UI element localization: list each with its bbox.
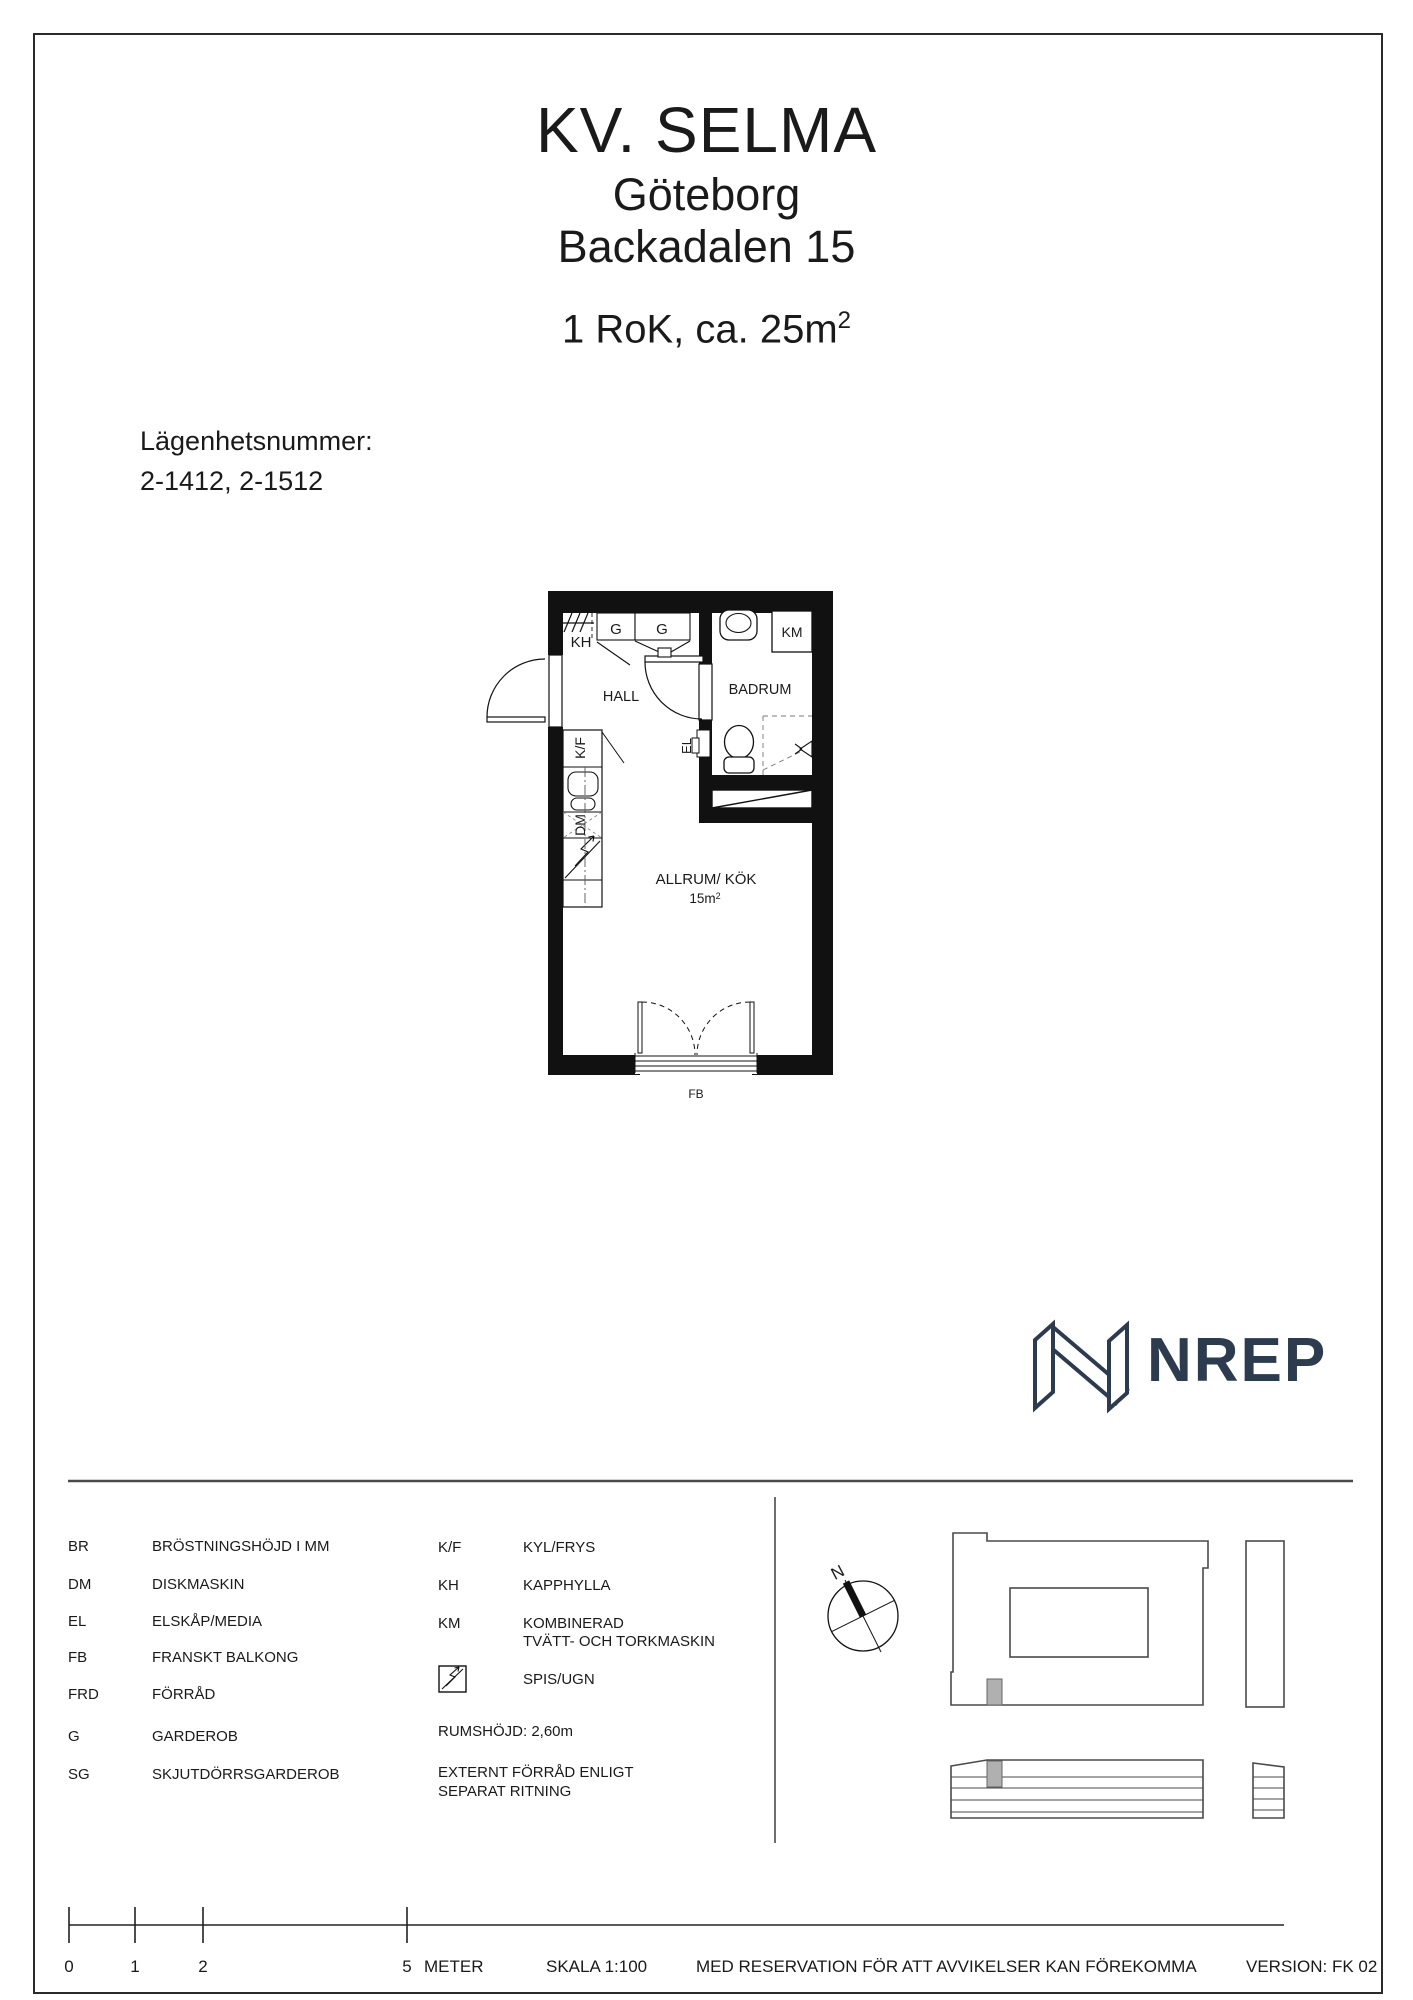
room-height-note: RUMSHÖJD: 2,60m <box>438 1723 573 1740</box>
kf-label: K/F <box>572 737 588 759</box>
allrum-label: ALLRUM/ KÖK <box>656 870 757 888</box>
legend-row-kf: K/FKYL/FRYS <box>438 1539 595 1556</box>
floor-plan: KH G G EL KM <box>487 591 833 1101</box>
kh-label: KH <box>571 634 592 651</box>
legend-desc: SPIS/UGN <box>523 1671 595 1688</box>
disclaimer-text: MED RESERVATION FÖR ATT AVVIKELSER KAN F… <box>696 1957 1197 1977</box>
legend-row-br: BRBRÖSTNINGSHÖJD I MM <box>68 1538 330 1555</box>
legend-code: KH <box>438 1577 523 1594</box>
legend-code: G <box>68 1728 152 1745</box>
legend-row-g: GGARDEROB <box>68 1728 238 1745</box>
legend-row-frd: FRDFÖRRÅD <box>68 1686 215 1703</box>
bathroom-door <box>645 656 712 720</box>
nrep-wordmark: NREP <box>1147 1330 1327 1392</box>
legend-row-dm: DMDISKMASKIN <box>68 1576 245 1593</box>
version-text: VERSION: FK 02 <box>1246 1957 1377 1977</box>
floorplan-document: { "header": { "project": "KV. SELMA", "c… <box>0 0 1413 2000</box>
legend-desc: DISKMASKIN <box>152 1576 245 1593</box>
nrep-logo-icon <box>1035 1324 1127 1409</box>
allrum-area-label: 15m2 <box>689 891 720 906</box>
legend-row-km-line2: TVÄTT- OCH TORKMASKIN <box>523 1633 715 1650</box>
legend-code: FB <box>68 1649 152 1666</box>
legend-desc: KYL/FRYS <box>523 1539 595 1556</box>
wardrobe-1-label: G <box>610 621 622 638</box>
site-plan <box>951 1533 1284 1707</box>
external-storage-note: EXTERNT FÖRRÅD ENLIGT SEPARAT RITNING <box>438 1764 634 1800</box>
apartment-location-marker <box>987 1679 1002 1705</box>
legend-desc: KAPPHYLLA <box>523 1577 611 1594</box>
fb-label: FB <box>688 1087 703 1101</box>
scale-bar <box>69 1907 1284 1943</box>
external-storage-line1: EXTERNT FÖRRÅD ENLIGT <box>438 1764 634 1781</box>
scale-tick-0: 0 <box>64 1957 73 1977</box>
legend-row-sg: SGSKJUTDÖRRSGARDEROB <box>68 1766 340 1783</box>
site-elevation <box>951 1760 1284 1818</box>
wardrobe-2-label: G <box>656 621 668 638</box>
km-label: KM <box>782 624 803 640</box>
legend-code: SG <box>68 1766 152 1783</box>
legend-row-el: ELELSKÅP/MEDIA <box>68 1613 262 1630</box>
french-balcony <box>635 1002 757 1074</box>
bathroom-sink <box>720 610 757 640</box>
installation-shaft <box>712 790 812 808</box>
hall-label: HALL <box>603 689 639 705</box>
legend-row-kh: KHKAPPHYLLA <box>438 1577 611 1594</box>
legend-desc: FRANSKT BALKONG <box>152 1649 298 1666</box>
external-storage-line2: SEPARAT RITNING <box>438 1783 634 1800</box>
legend-code: EL <box>68 1613 152 1630</box>
electrical-cabinet <box>692 730 710 757</box>
entry-door <box>487 655 562 727</box>
el-label: EL <box>679 738 694 754</box>
scale-ratio-label: SKALA 1:100 <box>546 1957 647 1977</box>
apartment-location-marker-elevation <box>987 1761 1002 1787</box>
scale-tick-2: 2 <box>198 1957 207 1977</box>
legend-code: KM <box>438 1615 523 1632</box>
legend-desc: SKJUTDÖRRSGARDEROB <box>152 1766 340 1783</box>
shower-head-icon <box>795 741 812 757</box>
toilet <box>724 726 754 774</box>
legend-row-stove: SPIS/UGN <box>523 1671 595 1688</box>
legend-desc: GARDEROB <box>152 1728 238 1745</box>
legend-desc: BRÖSTNINGSHÖJD I MM <box>152 1538 330 1555</box>
legend-row-km: KMKOMBINERAD <box>438 1615 624 1632</box>
legend-code: FRD <box>68 1686 152 1703</box>
legend-code: BR <box>68 1538 152 1555</box>
compass <box>828 1580 898 1652</box>
legend-code: K/F <box>438 1539 523 1556</box>
legend-desc: FÖRRÅD <box>152 1686 215 1703</box>
badrum-label: BADRUM <box>729 682 792 698</box>
legend-desc: ELSKÅP/MEDIA <box>152 1613 262 1630</box>
stove-legend-icon <box>439 1666 466 1692</box>
legend-desc: KOMBINERAD <box>523 1615 624 1632</box>
legend-row-fb: FBFRANSKT BALKONG <box>68 1649 298 1666</box>
scale-tick-1: 1 <box>130 1957 139 1977</box>
dm-label: DM <box>572 814 588 836</box>
legend-code: DM <box>68 1576 152 1593</box>
scale-tick-5: 5 <box>402 1957 411 1977</box>
scale-unit-label: METER <box>424 1957 484 1977</box>
legend-desc: TVÄTT- OCH TORKMASKIN <box>523 1633 715 1650</box>
